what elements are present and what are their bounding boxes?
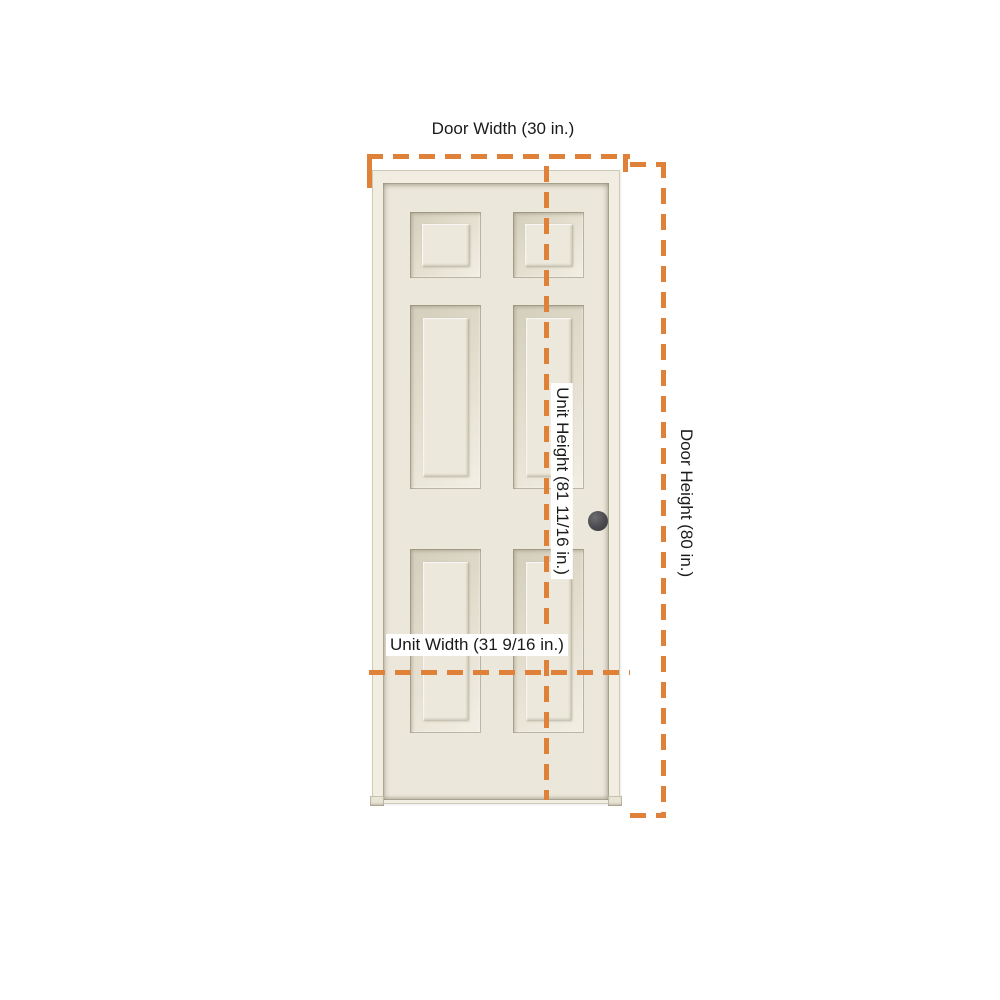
unit-width-dimension-line (369, 670, 630, 675)
door-panel-center (423, 318, 468, 476)
door-frame (372, 170, 620, 804)
door-panel-center (422, 224, 469, 266)
door-width-label: Door Width (30 in.) (428, 118, 579, 140)
door-height-dimension-line (661, 162, 666, 818)
product-dimension-diagram: Door Width (30 in.) Unit Height (81 11/1… (0, 0, 1000, 1000)
door-jamb-foot-right (608, 796, 622, 806)
door-panel (410, 305, 481, 489)
door-height-bottom-bracket (630, 813, 666, 818)
door-height-label: Door Height (80 in.) (675, 425, 697, 581)
door-width-dimension-line (367, 154, 630, 159)
door-slab (383, 183, 609, 800)
door-panel (410, 212, 481, 278)
unit-height-label: Unit Height (81 11/16 in.) (551, 383, 573, 579)
door-width-right-tick (623, 154, 628, 172)
unit-height-dimension-line (544, 166, 549, 800)
doorknob-icon (588, 511, 608, 531)
unit-width-label: Unit Width (31 9/16 in.) (386, 634, 568, 656)
door-jamb-foot-left (370, 796, 384, 806)
door-width-left-tick (367, 154, 372, 188)
